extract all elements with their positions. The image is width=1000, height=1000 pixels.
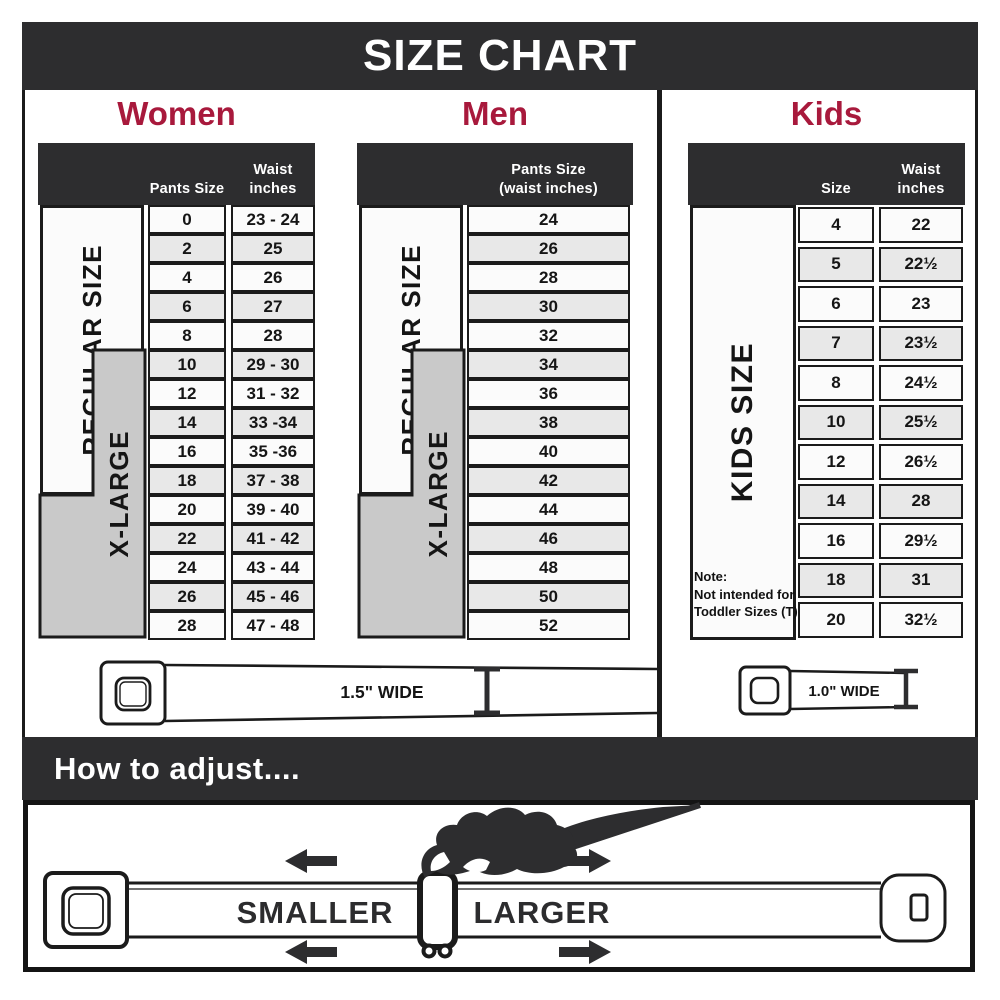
arrow-left-icon — [285, 940, 337, 964]
pants-size-cell: 14 — [148, 408, 226, 437]
waist-cell: 35 -36 — [231, 437, 315, 466]
pants-size-cell: 36 — [467, 379, 630, 408]
women-xlarge-label-box: X-LARGE — [93, 352, 146, 636]
pants-size-cell: 42 — [467, 466, 630, 495]
size-cell: 14 — [798, 484, 874, 520]
belt-slider-icon — [420, 873, 455, 957]
pants-size-cell: 26 — [467, 234, 630, 263]
pants-size-cell: 24 — [148, 553, 226, 582]
pants-size-cell: 46 — [467, 524, 630, 553]
larger-label: LARGER — [474, 895, 611, 930]
kids-note: Note: Not intended for Toddler Sizes (T) — [694, 568, 806, 621]
size-cell: 7 — [798, 326, 874, 362]
section-heading-kids: Kids — [688, 95, 965, 135]
pants-size-cell: 20 — [148, 495, 226, 524]
kids-belt-illustration: 1.0" WIDE — [735, 658, 930, 722]
size-cell: 18 — [798, 563, 874, 599]
pants-size-cell: 6 — [148, 292, 226, 321]
title-bar: SIZE CHART — [22, 22, 978, 90]
hand-illustration — [421, 808, 577, 878]
men-size-table: 24 26 28 30 32 34 36 — [467, 205, 630, 640]
pants-size-cell: 16 — [148, 437, 226, 466]
pants-size-cell: 28 — [467, 263, 630, 292]
waist-cell: 26½ — [879, 444, 963, 480]
waist-cell: 23 - 24 — [231, 205, 315, 234]
women-size-table: 0 23 - 24 2 25 4 26 6 27 8 28 — [148, 205, 315, 640]
size-cell: 8 — [798, 365, 874, 401]
size-cell: 10 — [798, 405, 874, 441]
pants-size-cell: 38 — [467, 408, 630, 437]
section-divider — [657, 90, 662, 737]
size-cell: 20 — [798, 602, 874, 638]
belt-buckle-icon — [101, 662, 165, 724]
smaller-label: SMALLER — [237, 895, 394, 930]
pants-size-cell: 32 — [467, 321, 630, 350]
waist-cell: 33 -34 — [231, 408, 315, 437]
pants-size-cell: 24 — [467, 205, 630, 234]
belt-width-label: 1.0" WIDE — [808, 683, 879, 700]
waist-cell: 23½ — [879, 326, 963, 362]
waist-cell: 27 — [231, 292, 315, 321]
kids-size-label: KIDS SIZE — [726, 342, 760, 502]
pants-size-cell: 44 — [467, 495, 630, 524]
men-xlarge-label: X-LARGE — [423, 430, 454, 558]
adult-belt-illustration: 1.5" WIDE — [95, 652, 660, 732]
waist-cell: 45 - 46 — [231, 582, 315, 611]
men-xlarge-label-box: X-LARGE — [412, 352, 465, 636]
women-column-header-pants-size: Pants Size — [148, 180, 226, 199]
waist-cell: 25½ — [879, 405, 963, 441]
adjust-illustration-box: SMALLER LARGER — [23, 800, 975, 972]
waist-cell: 37 - 38 — [231, 466, 315, 495]
women-table-header: Pants Size Waist inches — [38, 143, 315, 205]
size-chart-page: SIZE CHART Women Men Kids Pants Size Wai… — [0, 0, 1000, 1000]
waist-cell: 24½ — [879, 365, 963, 401]
strap-tail — [553, 805, 700, 845]
pants-size-cell: 8 — [148, 321, 226, 350]
women-column-header-waist: Waist inches — [231, 161, 315, 199]
waist-cell: 31 — [879, 563, 963, 599]
pants-size-cell: 22 — [148, 524, 226, 553]
waist-cell: 28 — [879, 484, 963, 520]
kids-column-header-size: Size — [798, 180, 874, 199]
waist-cell: 39 - 40 — [231, 495, 315, 524]
pants-size-cell: 0 — [148, 205, 226, 234]
pants-size-cell: 34 — [467, 350, 630, 379]
men-table-header: Pants Size (waist inches) — [357, 143, 633, 205]
waist-cell: 43 - 44 — [231, 553, 315, 582]
waist-cell: 31 - 32 — [231, 379, 315, 408]
waist-cell: 29 - 30 — [231, 350, 315, 379]
waist-cell: 22½ — [879, 247, 963, 283]
waist-cell: 28 — [231, 321, 315, 350]
pants-size-cell: 26 — [148, 582, 226, 611]
belt-buckle-icon — [45, 873, 127, 947]
arrow-right-icon — [559, 940, 611, 964]
section-heading-men: Men — [357, 95, 633, 135]
waist-cell: 22 — [879, 207, 963, 243]
women-xlarge-label: X-LARGE — [104, 430, 135, 558]
kids-size-table: 4 22 5 22½ 6 23 7 23½ 8 24½ — [798, 207, 963, 638]
belt-buckle-icon — [740, 667, 790, 714]
belt-width-label: 1.5" WIDE — [340, 682, 423, 702]
waist-cell: 29½ — [879, 523, 963, 559]
pants-size-cell: 2 — [148, 234, 226, 263]
waist-cell: 32½ — [879, 602, 963, 638]
pants-size-cell: 18 — [148, 466, 226, 495]
pants-size-cell: 12 — [148, 379, 226, 408]
adjust-illustration: SMALLER LARGER — [23, 775, 975, 977]
width-marker-icon — [474, 669, 500, 713]
waist-cell: 26 — [231, 263, 315, 292]
pants-size-cell: 52 — [467, 611, 630, 640]
pants-size-cell: 40 — [467, 437, 630, 466]
waist-cell: 41 - 42 — [231, 524, 315, 553]
men-column-header-pants-size: Pants Size (waist inches) — [467, 161, 630, 199]
pants-size-cell: 50 — [467, 582, 630, 611]
size-cell: 4 — [798, 207, 874, 243]
size-cell: 6 — [798, 286, 874, 322]
size-cell: 16 — [798, 523, 874, 559]
waist-cell: 25 — [231, 234, 315, 263]
pants-size-cell: 4 — [148, 263, 226, 292]
size-cell: 5 — [798, 247, 874, 283]
waist-cell: 23 — [879, 286, 963, 322]
pants-size-cell: 10 — [148, 350, 226, 379]
arrow-left-icon — [285, 849, 337, 873]
pants-size-cell: 28 — [148, 611, 226, 640]
kids-table-header: Size Waist inches — [688, 143, 965, 205]
size-cell: 12 — [798, 444, 874, 480]
belt-latch-icon — [881, 875, 945, 941]
section-heading-women: Women — [38, 95, 315, 135]
pants-size-cell: 30 — [467, 292, 630, 321]
waist-cell: 47 - 48 — [231, 611, 315, 640]
width-marker-icon — [894, 671, 918, 707]
page-title: SIZE CHART — [363, 31, 637, 81]
kids-column-header-waist: Waist inches — [879, 161, 963, 199]
pants-size-cell: 48 — [467, 553, 630, 582]
